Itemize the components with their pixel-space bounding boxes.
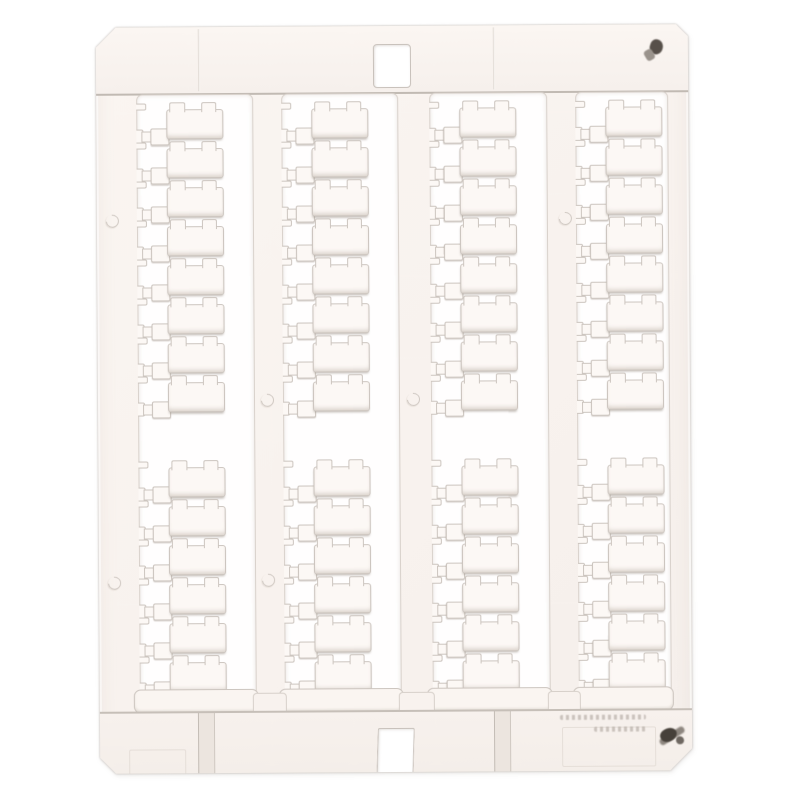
marker-tag-tab2 [641, 294, 656, 304]
marker-tag-tick [284, 500, 294, 507]
marker-tag-tick [575, 140, 585, 147]
marker-tag-tick [430, 297, 440, 304]
marker-tag-tab1 [314, 140, 330, 150]
marker-strip-cutout [281, 93, 402, 703]
marker-tag-tab1 [609, 256, 625, 266]
marker-tag-body [166, 148, 223, 178]
marker-tag [432, 373, 517, 416]
marker-tag-tick [283, 376, 293, 383]
marker-tag-body [609, 659, 666, 689]
marker-tag-body [608, 503, 665, 533]
card-bottom-rail [100, 708, 692, 776]
marker-tag [431, 217, 516, 260]
marker-tag-body [608, 581, 665, 611]
marker-tag-tick [432, 499, 442, 506]
marker-tag-tab2 [496, 334, 511, 344]
marker-tag-tab1 [315, 218, 331, 228]
marker-tag [430, 139, 515, 182]
marker-tag-body [315, 661, 372, 691]
marker-tag-body [311, 108, 368, 138]
marker-tag [138, 258, 223, 301]
marker-tag [285, 615, 370, 658]
mold-circle-mark [103, 212, 121, 230]
marker-tag [433, 575, 518, 618]
marker-tag-tab1 [317, 537, 333, 547]
marker-tag-tab1 [612, 653, 628, 663]
marker-tag-body [314, 544, 371, 574]
marker-tag [579, 496, 664, 539]
marker-tag-tab2 [347, 179, 362, 189]
marker-tag-body [167, 304, 224, 334]
marker-tag-tab1 [611, 497, 627, 507]
ink-smudge-top-right [644, 37, 670, 63]
marker-tag-tab1 [611, 614, 627, 624]
marker-tag [577, 177, 662, 220]
marker-tag-body [460, 302, 517, 332]
marker-tag-tick [576, 296, 586, 303]
marker-tag-body [462, 543, 519, 573]
marker-tag [139, 375, 224, 418]
marker-tag-tick [578, 576, 588, 583]
marker-tag [283, 179, 368, 222]
marker-tag-body [607, 464, 664, 494]
marker-tag [284, 374, 369, 417]
marker-tag [282, 101, 367, 144]
molded-recess [129, 749, 186, 776]
marker-tag-tick [139, 501, 149, 508]
marker-tag-tab2 [347, 218, 362, 228]
marker-tag-body [459, 146, 516, 176]
rail-foot [253, 693, 287, 712]
marker-tag-tab2 [204, 577, 219, 587]
marker-tag-tab2 [346, 101, 361, 111]
marker-tag [285, 537, 370, 580]
marker-tag-tab2 [643, 496, 658, 506]
marker-tag [578, 372, 663, 415]
marker-tag [285, 576, 370, 619]
marker-tag-tick [137, 299, 147, 306]
marker-tag-tick [139, 578, 149, 585]
marker-tag [139, 336, 224, 379]
marker-tag-tab1 [463, 178, 479, 188]
marker-tag [140, 538, 225, 581]
marker-tag [431, 178, 516, 221]
marker-tag-tab1 [172, 577, 188, 587]
marker-tag-body [167, 265, 224, 295]
marker-tag-tick [432, 577, 442, 584]
mold-circle-mark [105, 574, 123, 592]
marker-tag-tab2 [496, 458, 511, 468]
marker-tag-tab1 [611, 575, 627, 585]
marker-tag-tab2 [202, 219, 217, 229]
marker-tag-body [312, 264, 369, 294]
marker-tag-tick [137, 221, 147, 228]
marker-tag-tab1 [172, 499, 188, 509]
marker-tag-tab2 [641, 177, 656, 187]
embossed-marking-line [560, 714, 646, 720]
marker-tag-tab2 [348, 459, 363, 469]
marker-tag-tab1 [317, 576, 333, 586]
marker-tag-tab1 [170, 258, 186, 268]
marker-tag-tick [139, 617, 149, 624]
marker-tag-tab1 [609, 217, 625, 227]
marker-tag [138, 180, 223, 223]
marker-tag-tick [137, 182, 147, 189]
marker-tag-tab1 [465, 614, 481, 624]
marker-tag [138, 219, 223, 262]
marker-tag-tab1 [170, 219, 186, 229]
marker-tag-body [605, 145, 662, 175]
marker-tag [433, 497, 518, 540]
marker-tag [578, 457, 663, 500]
marker-tag-body [462, 504, 519, 534]
marker-tag-tick [139, 540, 149, 547]
marker-tag-tab2 [201, 141, 216, 151]
marker-tag-tab2 [204, 616, 219, 626]
marker-tag-tab2 [497, 575, 512, 585]
marker-tag-tab2 [495, 295, 510, 305]
marker-tag-tab1 [610, 373, 626, 383]
marker-tag [137, 102, 222, 145]
marker-strip-cutout [136, 94, 257, 704]
marker-tag-tick [284, 617, 294, 624]
marker-tag-tab2 [641, 216, 656, 226]
marker-tag-tab2 [350, 654, 365, 664]
marker-tag [283, 296, 368, 339]
marker-tag [433, 536, 518, 579]
ink-smudge-bottom-right [650, 720, 690, 754]
marker-tag-tick [430, 258, 440, 265]
marker-tag-tab2 [203, 460, 218, 470]
marker-tag-tab1 [172, 538, 188, 548]
marker-tag-tab2 [203, 336, 218, 346]
marker-tag [140, 577, 225, 620]
marker-tag-tick [432, 616, 442, 623]
marker-tag-tab2 [497, 614, 512, 624]
marker-tag-tick [283, 461, 293, 468]
marker-tag-tab1 [317, 615, 333, 625]
marker-tag-body [169, 545, 226, 575]
marker-tag-tick [431, 460, 441, 467]
marker-tag-body [169, 506, 226, 536]
marker-tag-tab1 [317, 498, 333, 508]
marker-tag-tick [282, 298, 292, 305]
marker-tag-tick [284, 578, 294, 585]
marker-tag-tick [578, 498, 588, 505]
product-photo [0, 0, 800, 800]
marker-tag [576, 99, 661, 142]
mold-circle-mark [404, 390, 422, 408]
marker-tag-tick [431, 336, 441, 343]
marker-tag-tab2 [642, 457, 657, 467]
marker-tag-tab2 [642, 333, 657, 343]
marker-tag [579, 613, 664, 656]
embossed-marking-line [594, 726, 646, 731]
marker-tag-tab2 [495, 217, 510, 227]
marker-tag [432, 334, 517, 377]
marker-tag-tick [138, 462, 148, 469]
marker-tag-body [607, 340, 664, 370]
marker-tag [578, 333, 663, 376]
marker-tag-tab2 [641, 255, 656, 265]
marker-tag-tab2 [497, 497, 512, 507]
marker-tag-tab1 [464, 334, 480, 344]
marker-strip-cutout [429, 92, 551, 702]
marker-tag-tab2 [495, 256, 510, 266]
marker-tag-body [314, 622, 371, 652]
sprue-stem [494, 711, 511, 773]
marker-tag-tab2 [201, 102, 216, 112]
marker-tag [282, 140, 367, 183]
marker-strip-cutout [575, 91, 672, 701]
marker-tag-body [169, 623, 226, 653]
marker-tag-tab1 [465, 536, 481, 546]
mold-circle-mark [259, 571, 277, 589]
marker-tag-tab1 [314, 101, 330, 111]
marker-tag-body [462, 621, 519, 651]
marker-tag-tick [140, 656, 150, 663]
marker-tag [576, 138, 661, 181]
marker-tag-tab1 [171, 336, 187, 346]
marker-tag-tab2 [495, 178, 510, 188]
marker-tag-tab1 [609, 295, 625, 305]
marker-tag-tick [577, 335, 587, 342]
marker-tag [139, 460, 224, 503]
marker-tag-tick [285, 656, 295, 663]
marker-tag [284, 335, 369, 378]
marker-tag-tick [283, 337, 293, 344]
marker-tag [430, 100, 515, 143]
marker-tag-tab1 [170, 180, 186, 190]
marker-tag [431, 295, 516, 338]
marker-tag-tab2 [498, 653, 513, 663]
marker-tag-tab2 [347, 296, 362, 306]
marker-tag-body [314, 505, 371, 535]
marker-tag-tab1 [171, 460, 187, 470]
marker-tag-tab2 [348, 335, 363, 345]
molded-recess [562, 726, 656, 767]
marker-tag-tab1 [464, 373, 480, 383]
marker-tag-body [460, 185, 517, 215]
marker-tag-tab1 [462, 139, 478, 149]
marker-tag-tab1 [608, 139, 624, 149]
marker-tag [285, 498, 370, 541]
marker-tag-tick [429, 102, 439, 109]
marker-tag-tab2 [202, 297, 217, 307]
marker-tag-tab2 [347, 257, 362, 267]
marker-tag [283, 218, 368, 261]
strip-bottom-bar [134, 689, 259, 714]
marker-tag-tab2 [205, 655, 220, 665]
card-top-rail [96, 24, 688, 96]
marker-tag-tab1 [315, 296, 331, 306]
marker-tag-tab1 [463, 256, 479, 266]
marker-tag-body [170, 662, 227, 692]
marker-tag-body [313, 381, 370, 411]
marker-tag-tab1 [315, 179, 331, 189]
alignment-slot [376, 728, 414, 775]
marker-tag-tab1 [466, 653, 482, 663]
marker-tag-tick [429, 141, 439, 148]
marker-tag-tab1 [169, 102, 185, 112]
marker-tag-body [605, 106, 662, 136]
marker-tag-tab2 [202, 180, 217, 190]
marker-tag [579, 574, 664, 617]
marker-tag-tab2 [644, 652, 659, 662]
marker-tag-tab2 [643, 535, 658, 545]
mold-circle-mark [556, 209, 574, 227]
marker-tag-tab2 [204, 499, 219, 509]
marker-tag-tab1 [315, 257, 331, 267]
marker-tag-tab2 [348, 374, 363, 384]
marker-tag-tab1 [465, 497, 481, 507]
marker-tag-body [167, 226, 224, 256]
marker-tag-body [312, 225, 369, 255]
marker-tag-body [168, 382, 225, 412]
marker-tag [140, 616, 225, 659]
marker-tag-body [166, 109, 223, 139]
marker-tag-tab1 [318, 654, 334, 664]
marker-tag-body [461, 341, 518, 371]
marker-tag-tab2 [643, 613, 658, 623]
marker-tag-tab2 [349, 498, 364, 508]
marker-tag-tick [281, 103, 291, 110]
marker-tag-tab2 [349, 537, 364, 547]
marker-tag-tab2 [643, 574, 658, 584]
marker-tag-tick [431, 375, 441, 382]
marker-tag-body [169, 584, 226, 614]
marker-tag-tick [136, 104, 146, 111]
marker-tag-tick [282, 181, 292, 188]
marker-tag-tick [576, 257, 586, 264]
rail-foot [399, 692, 435, 711]
marker-tag-tab2 [202, 258, 217, 268]
marker-tag-tab1 [172, 616, 188, 626]
marker-tag [577, 216, 662, 259]
marker-tag-body [460, 224, 517, 254]
sprue-stem [198, 713, 215, 775]
marker-tag-tab2 [642, 372, 657, 382]
marker-tag-tick [576, 218, 586, 225]
marker-tag-tab1 [464, 458, 480, 468]
marker-tag [431, 256, 516, 299]
marker-tag-body [463, 660, 520, 690]
marker-tag-body [607, 379, 664, 409]
marker-tag [284, 459, 369, 502]
marker-tag-tick [136, 143, 146, 150]
marker-tag-body [168, 343, 225, 373]
marker-tag-body [461, 465, 518, 495]
strip-bottom-bar [573, 686, 674, 711]
marker-tag-tick [433, 655, 443, 662]
marker-tag-body [606, 262, 663, 292]
marker-tag-tab2 [494, 100, 509, 110]
marker-tag-tab2 [204, 538, 219, 548]
marker-tag-tick [578, 615, 588, 622]
marker-tag-tick [430, 180, 440, 187]
marker-tag-tab2 [640, 138, 655, 148]
rail-foot [548, 691, 581, 710]
marker-card-frame [96, 24, 693, 774]
marker-tag [137, 141, 222, 184]
marker-tag-tab2 [349, 615, 364, 625]
marker-tag-tick [576, 179, 586, 186]
marker-tag-tab2 [497, 536, 512, 546]
marker-tag [283, 257, 368, 300]
marker-tag-tab1 [463, 217, 479, 227]
marker-tag-tab1 [316, 374, 332, 384]
marker-tag-tick [577, 374, 587, 381]
marker-tag [577, 255, 662, 298]
marker-tag-body [313, 466, 370, 496]
marker-tag-body [606, 184, 663, 214]
marker-tag-body [608, 542, 665, 572]
marker-tag-tab2 [346, 140, 361, 150]
marker-tag-body [606, 223, 663, 253]
marker-tag-tick [575, 101, 585, 108]
marker-tag-tick [282, 220, 292, 227]
marker-tag-tab2 [640, 99, 655, 109]
marker-tag-body [459, 107, 516, 137]
marker-tag-body [313, 342, 370, 372]
marker-tag-body [461, 380, 518, 410]
marker-tag-tab1 [171, 375, 187, 385]
marker-tag-tab2 [496, 373, 511, 383]
marker-tag [433, 614, 518, 657]
marker-tag-tab1 [465, 575, 481, 585]
marker-tag-tick [579, 654, 589, 661]
marker-tag-body [312, 186, 369, 216]
marker-tag-tab1 [463, 295, 479, 305]
mold-seam [198, 29, 200, 91]
marker-tag-tick [430, 219, 440, 226]
marker-tag-tick [138, 377, 148, 384]
marker-tag-tab1 [173, 655, 189, 665]
marker-tag-tick [281, 142, 291, 149]
marker-tag-body [311, 147, 368, 177]
marker-tag-tab1 [611, 536, 627, 546]
marker-tag-body [606, 301, 663, 331]
mold-circle-mark [258, 391, 276, 409]
marker-tag-tab1 [609, 178, 625, 188]
marker-tag-body [608, 620, 665, 650]
marker-tag-tab2 [494, 139, 509, 149]
strip-bottom-bar [279, 688, 404, 713]
strip-bottom-bar [427, 687, 553, 712]
marker-tag-tab2 [203, 375, 218, 385]
marker-tag-tab1 [170, 297, 186, 307]
marker-tag-body [168, 467, 225, 497]
marker-tag-tick [282, 259, 292, 266]
marker-tag-tab1 [169, 141, 185, 151]
marker-tag [432, 458, 517, 501]
marker-tag-tick [577, 459, 587, 466]
marker-tag-body [314, 583, 371, 613]
mold-seam [493, 27, 495, 89]
marker-tag [577, 294, 662, 337]
marker-tag-tab1 [610, 334, 626, 344]
marker-tag-tick [578, 537, 588, 544]
marker-tag-body [462, 582, 519, 612]
marker-tag-body [460, 263, 517, 293]
marker-tag-tab1 [462, 100, 478, 110]
marker-tag-tick [432, 538, 442, 545]
marker-tag-tick [138, 338, 148, 345]
marker-tag-tick [137, 260, 147, 267]
marker-tag [579, 535, 664, 578]
marker-tag-body [167, 187, 224, 217]
marker-tag-body [312, 303, 369, 333]
